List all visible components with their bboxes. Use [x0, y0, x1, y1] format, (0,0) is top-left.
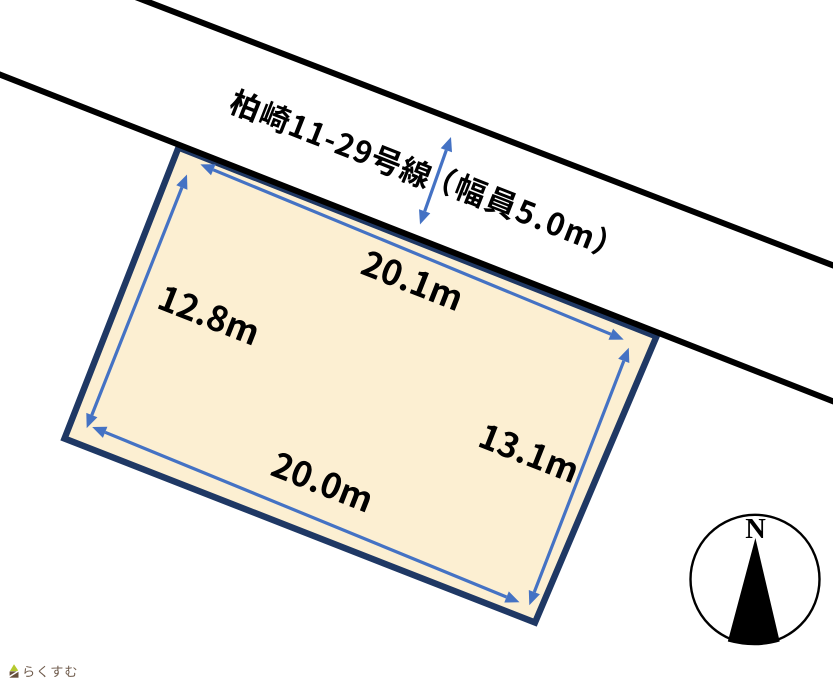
svg-text:N: N [745, 514, 766, 545]
